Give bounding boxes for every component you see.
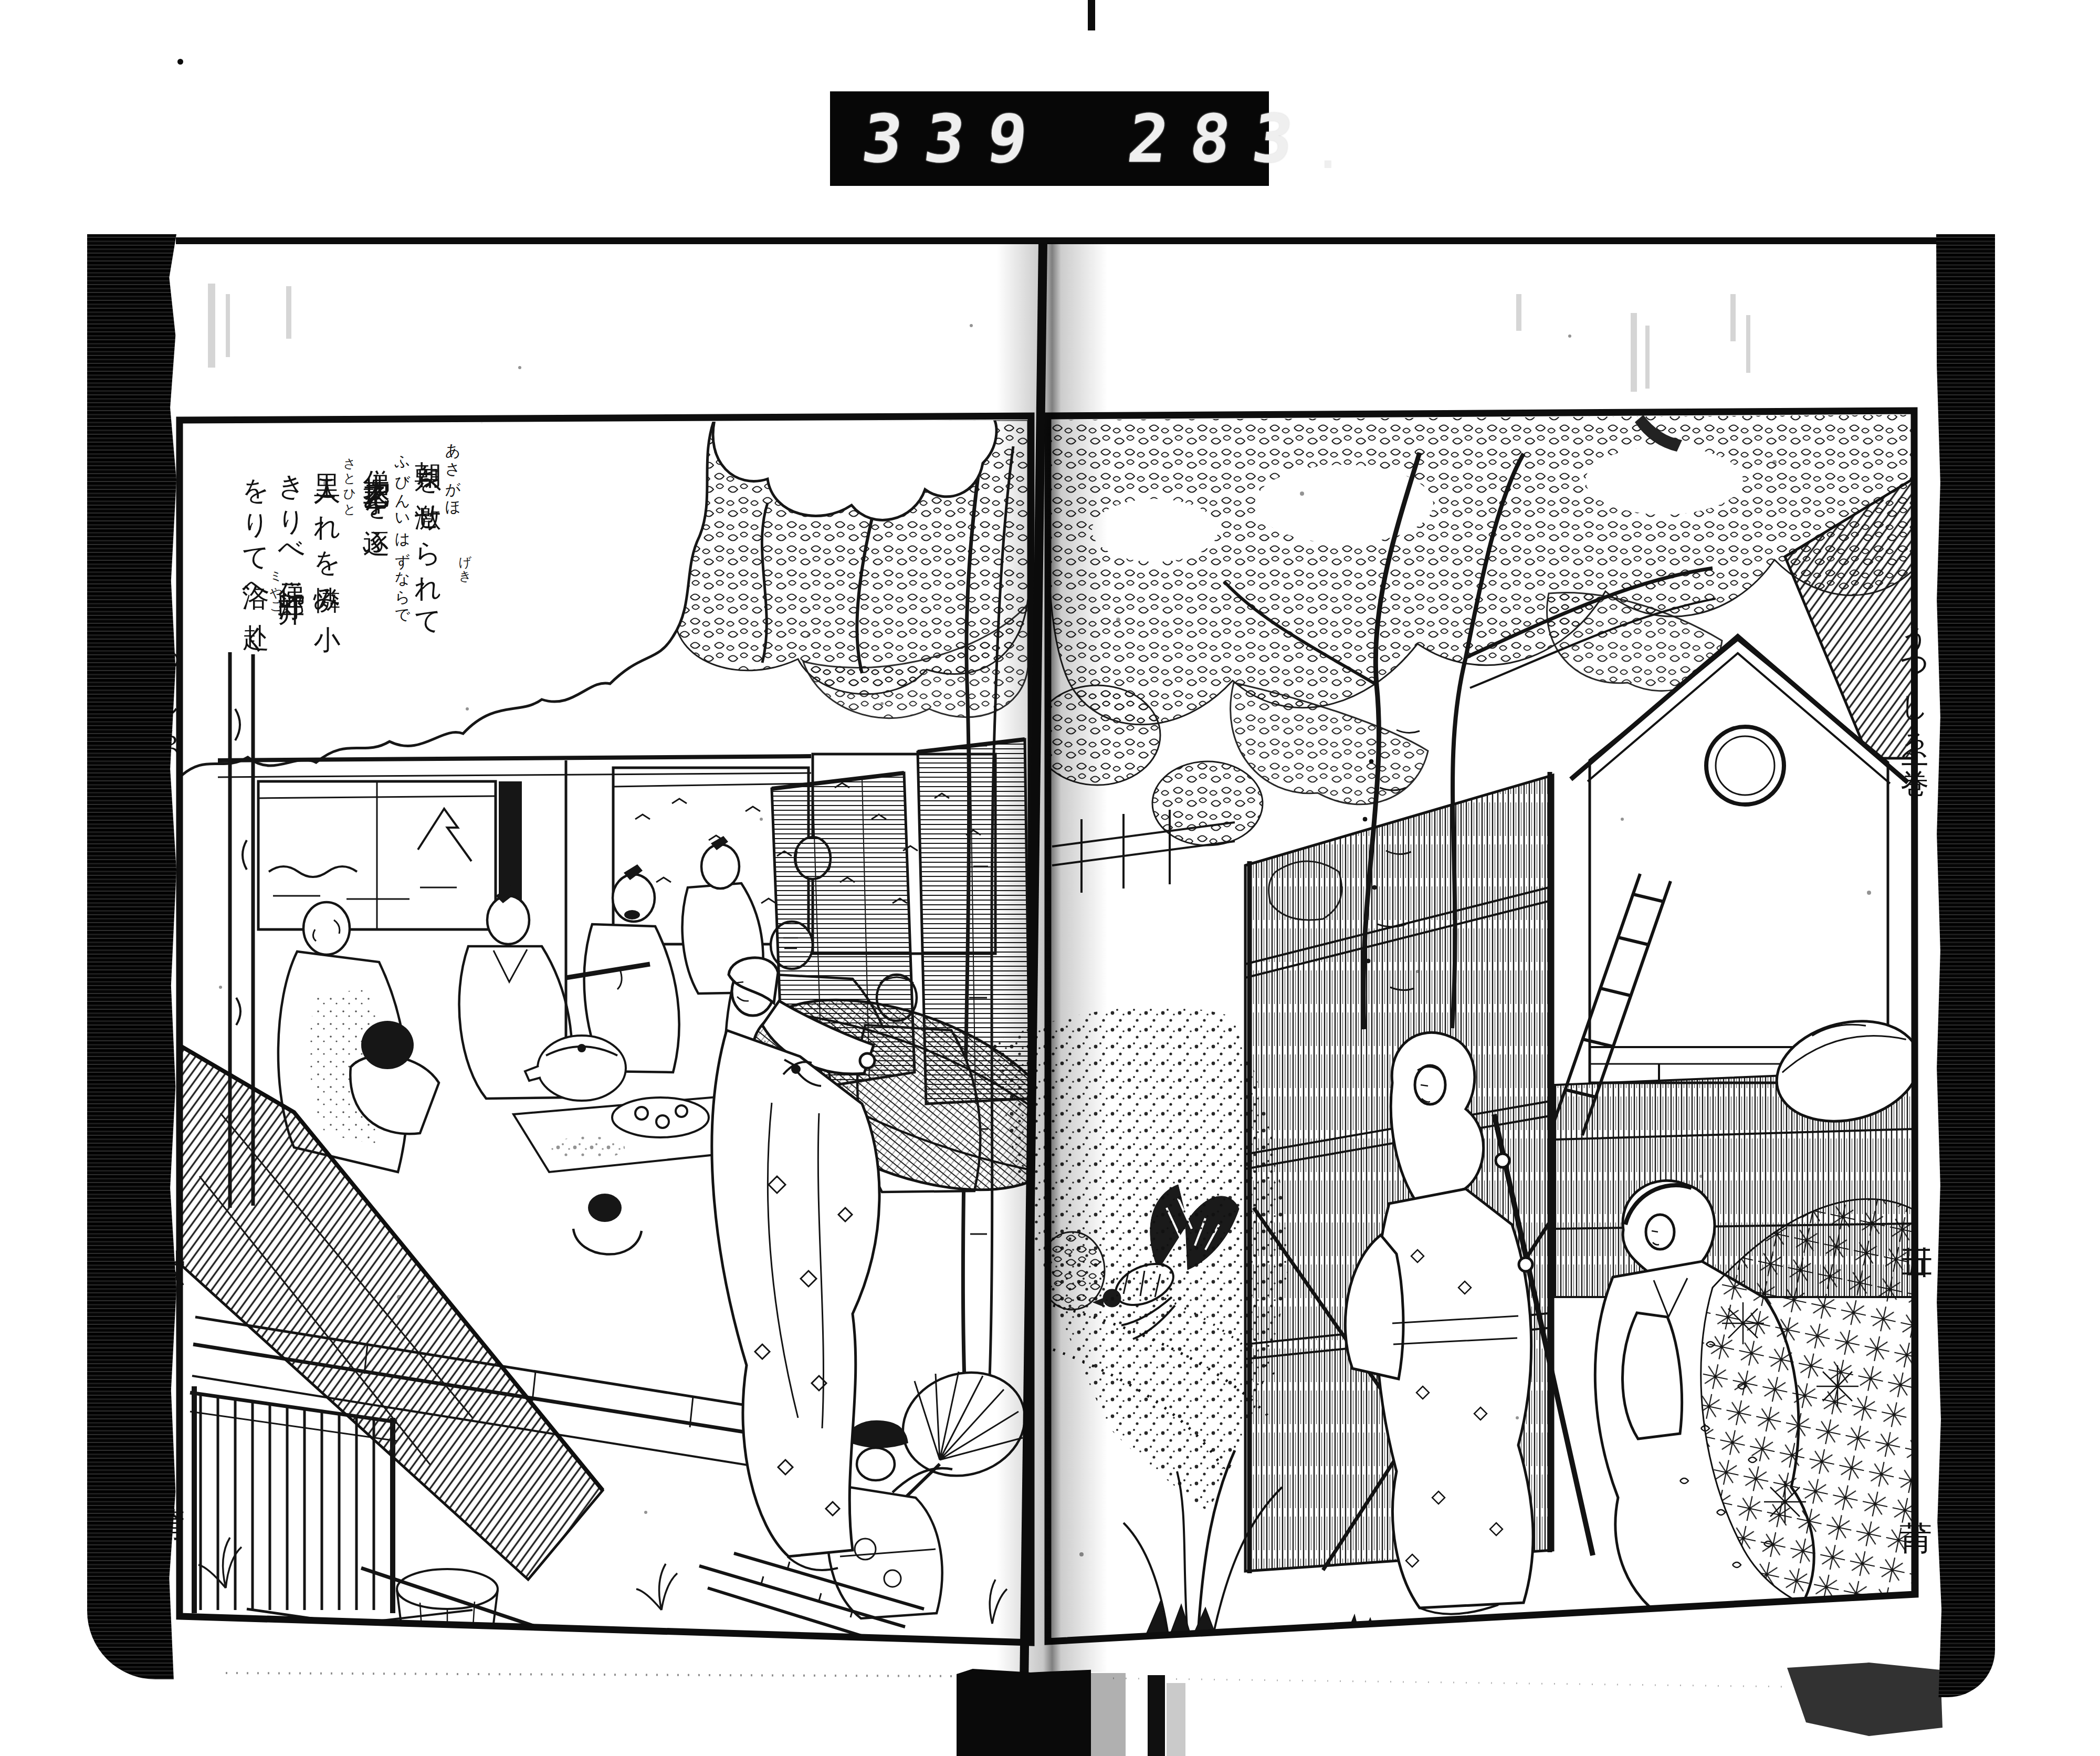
sky-gap: [1585, 446, 1743, 515]
cartouche-furigana: げき: [459, 546, 471, 577]
cartouche-column: 朝㒵を激せられて: [415, 440, 442, 627]
bottom-right-grunge: [1787, 1663, 1942, 1736]
cartouche-furigana: さとひと: [343, 450, 356, 511]
spine-clamp: [957, 1669, 1091, 1756]
spine-clamp-shadow: [1091, 1673, 1126, 1756]
cartouche-column: ふびんいはずならで: [395, 445, 410, 618]
wooden-tub: [361, 1568, 533, 1643]
cartouche-furigana: あさがほ: [445, 433, 460, 509]
sky-gap: [1255, 465, 1433, 543]
left-page-fore-edge: [87, 234, 176, 1679]
right-page-fore-edge: [1936, 234, 1995, 1697]
cartouche-column: 俤太夫把乙子を逐ふ: [363, 448, 390, 548]
cartouche-furigana: ミやこ: [270, 563, 282, 609]
fuji-painting: [418, 809, 471, 861]
bottom-edge-dirt-left: [226, 1673, 958, 1676]
farm-tools: [247, 1609, 472, 1650]
cartouche-column: をりて洛へ赴く: [243, 459, 269, 642]
cartouche-column: 里人これを憐み小: [314, 453, 341, 609]
spine-strip-shadow: [1167, 1683, 1185, 1756]
round-window: [1706, 727, 1784, 804]
scanned-book-page: 339 283 . うつしゑ 丗六 莆 うつしゑ巻一 丗五 莆: [0, 0, 2100, 1756]
spine-strip: [1148, 1675, 1165, 1756]
bottom-edge-dirt-right: [1113, 1678, 1785, 1687]
book-gutter-shadow: [996, 243, 1108, 1672]
sky-gap: [1092, 499, 1218, 562]
